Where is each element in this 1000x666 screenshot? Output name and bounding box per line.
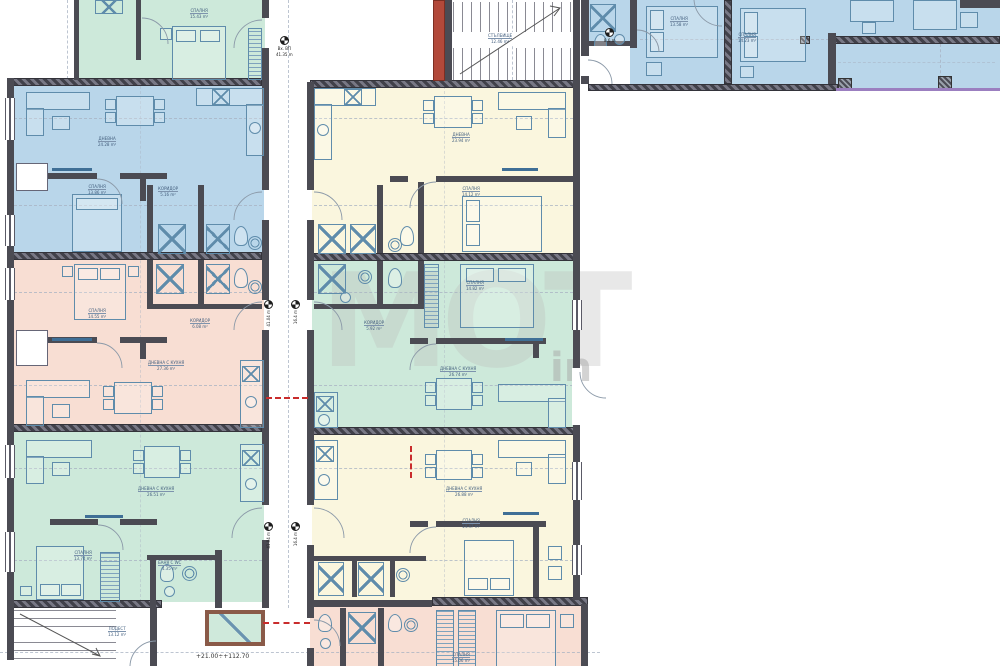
door-arcs-overlay	[0, 0, 1000, 666]
room-label: ДНЕВНА С КУХНЯ26.88 m²	[446, 486, 482, 497]
level-marker: 16.4 m	[291, 300, 300, 324]
level-marker-icon	[291, 522, 300, 531]
room-label: ДНЕВНА24.28 m²	[98, 136, 116, 147]
elevation-note: +21.00÷+112.70	[196, 653, 249, 660]
level-marker: 8.6 m	[604, 28, 616, 43]
level-marker-icon	[264, 522, 273, 531]
room-label: СПАЛНЯ13.74 m²	[74, 550, 92, 561]
level-marker: 16.4 m	[291, 522, 300, 546]
room-label: ПОДЕСТ13.12 m²	[108, 626, 126, 637]
room-label: КОРИДОР5.92 m²	[364, 320, 384, 331]
room-label: СПАЛНЯ13.58 m²	[670, 16, 688, 27]
room-label: ДНЕВНА С КУХНЯ26.74 m²	[440, 366, 476, 377]
room-label: БАНЯ С WC4.35 m²	[158, 560, 181, 571]
room-label: ДНЕВНА С КУХНЯ27.36 m²	[148, 360, 184, 371]
level-marker: 41.04 m	[264, 522, 273, 549]
room-label: СПАЛНЯ14.82 m²	[466, 280, 484, 291]
level-marker-icon	[264, 300, 273, 309]
level-marker: 41.04 m	[264, 300, 273, 327]
room-label: КОРИДОР6.08 m²	[190, 318, 210, 329]
floor-plan-canvas: MOT in	[0, 0, 1000, 666]
room-label: СПАЛНЯ13.86 m²	[88, 184, 106, 195]
level-marker-icon	[280, 36, 289, 45]
room-label: СПАЛНЯ14.12 m²	[462, 186, 480, 197]
level-marker-icon	[605, 28, 614, 37]
room-label: СПАЛНЯ15.06 m²	[452, 652, 470, 663]
room-label: ДНЕВНА С КУХНЯ26.51 m²	[138, 486, 174, 497]
room-label: ДНЕВНА23.94 m²	[452, 132, 470, 143]
room-label: СПАЛНЯ14.23 m²	[738, 32, 756, 43]
room-label: СПАЛНЯ14.55 m²	[88, 308, 106, 319]
room-label: СПАЛНЯ14.47 m²	[462, 518, 480, 529]
room-label: СТЪЛБИЩЕ12.46 m²	[488, 33, 512, 44]
level-marker-icon	[291, 300, 300, 309]
room-label: СПАЛНЯ15.43 m²	[190, 8, 208, 19]
level-marker: Вх. ВП 41.35 m	[276, 36, 293, 57]
room-label: КОРИДОР5.16 m²	[158, 186, 178, 197]
